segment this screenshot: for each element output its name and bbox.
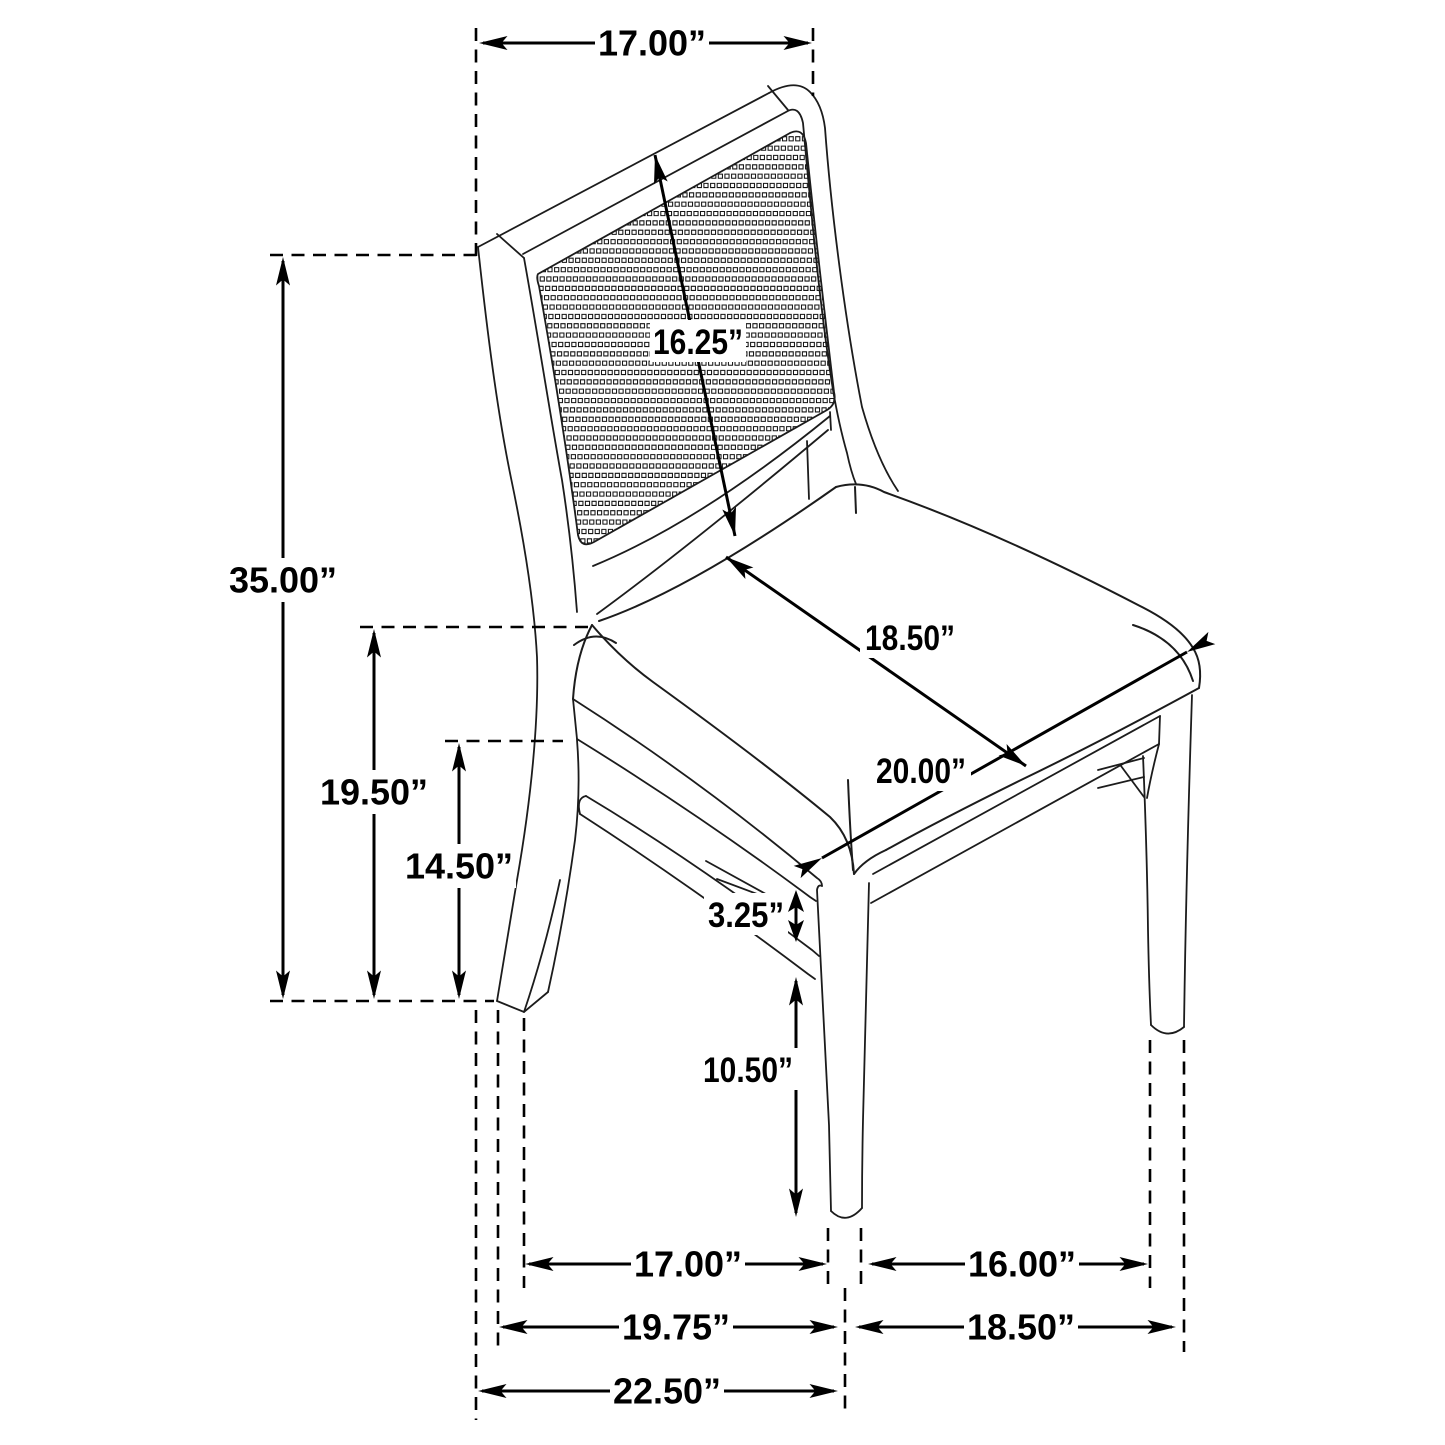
svg-text:16.25”: 16.25” [653,323,743,362]
svg-text:3.25”: 3.25” [708,896,784,935]
svg-text:14.50”: 14.50” [405,846,513,887]
svg-text:22.50”: 22.50” [613,1371,721,1412]
svg-text:16.00”: 16.00” [968,1244,1076,1285]
svg-text:35.00”: 35.00” [229,560,337,601]
svg-text:20.00”: 20.00” [876,752,966,791]
svg-text:19.75”: 19.75” [622,1307,730,1348]
svg-text:18.50”: 18.50” [865,619,955,658]
svg-text:17.00”: 17.00” [598,23,706,64]
svg-text:18.50”: 18.50” [967,1307,1075,1348]
svg-text:19.50”: 19.50” [320,772,428,813]
svg-text:10.50”: 10.50” [703,1051,793,1090]
svg-text:17.00”: 17.00” [634,1244,742,1285]
